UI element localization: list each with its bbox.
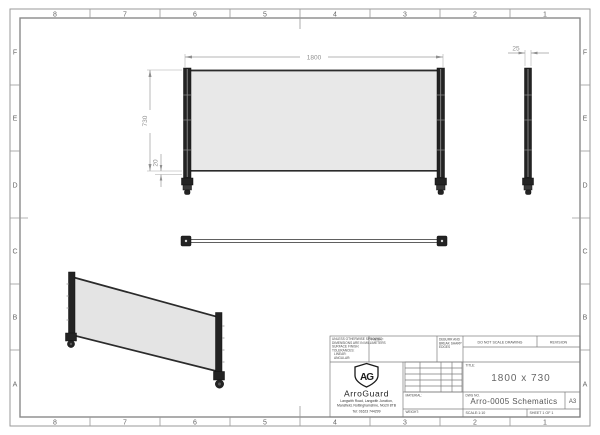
dwg-no-value: Arro-0005 Schematics xyxy=(470,397,557,406)
left-foot-caster xyxy=(182,178,194,195)
side-post xyxy=(525,68,532,178)
row-label: A xyxy=(13,382,18,389)
company-address-2: Mansfield, Nottinghamshire, NG20 8TB xyxy=(337,403,397,407)
paper-size: A3 xyxy=(569,399,577,405)
front-view xyxy=(182,68,447,195)
offset-dim-text: 20 xyxy=(153,159,160,167)
tolerance-note-line: ANGULAR: xyxy=(334,356,350,360)
col-label: 6 xyxy=(193,12,197,19)
row-label: E xyxy=(583,116,588,123)
row-label: F xyxy=(583,50,587,57)
col-label: 1 xyxy=(543,12,547,19)
row-label: C xyxy=(12,249,17,256)
company-cell: AG ArroGuard Langwith Road, Langwith Jun… xyxy=(337,364,397,414)
col-label: 5 xyxy=(263,12,267,19)
right-foot-caster xyxy=(435,178,447,195)
col-label: 3 xyxy=(403,420,407,427)
dimension-bottom-offset: 20 xyxy=(153,154,183,187)
title-block: UNLESS OTHERWISE SPECIFIED: DIMENSIONS A… xyxy=(330,336,580,417)
isometric-view xyxy=(66,272,225,388)
col-label: 4 xyxy=(333,12,337,19)
weight-label: WEIGHT: xyxy=(406,410,419,414)
row-label: D xyxy=(582,183,587,190)
height-dim-text: 730 xyxy=(142,115,149,126)
post-width-dim-text: 25 xyxy=(512,46,520,53)
revision-label: REVISION xyxy=(550,340,568,344)
logo-monogram: AG xyxy=(360,372,374,383)
drawing-sheet: 8 7 6 5 4 3 2 1 8 7 6 5 4 3 2 1 F E D C … xyxy=(0,0,600,435)
dimension-width: 1800 xyxy=(185,54,443,67)
col-label: 7 xyxy=(123,420,127,427)
scale-label: SCALE:1:10 xyxy=(466,411,486,415)
dimension-height: 730 xyxy=(142,70,182,171)
col-label: 8 xyxy=(53,12,57,19)
panel-iso xyxy=(74,278,218,372)
do-not-scale-label: DO NOT SCALE DRAWING xyxy=(478,340,523,344)
col-label: 5 xyxy=(263,420,267,427)
company-logo-shield-icon: AG xyxy=(355,364,378,388)
dwg-no-cell: DWG NO. Arro-0005 Schematics xyxy=(466,394,558,407)
col-label: 4 xyxy=(333,420,337,427)
row-label: A xyxy=(583,382,588,389)
right-post-hole xyxy=(441,240,443,242)
col-label: 8 xyxy=(53,420,57,427)
col-label: 2 xyxy=(473,420,477,427)
company-phone: Tel: 01623 744299 xyxy=(353,410,381,414)
row-label: F xyxy=(13,50,17,57)
title-cell: TITLE: 1800 x 730 xyxy=(466,364,551,385)
row-label: E xyxy=(13,116,18,123)
schematic-canvas: 8 7 6 5 4 3 2 1 8 7 6 5 4 3 2 1 F E D C … xyxy=(0,0,600,435)
row-label: C xyxy=(582,249,587,256)
col-label: 3 xyxy=(403,12,407,19)
panel-front xyxy=(186,70,442,171)
iso-right-post xyxy=(216,313,225,376)
iso-left-post xyxy=(67,272,76,335)
iso-right-foot-caster xyxy=(214,372,225,389)
left-post xyxy=(184,68,192,178)
drawing-title: 1800 x 730 xyxy=(491,373,551,384)
material-label: MATERIAL: xyxy=(406,394,423,398)
approval-table xyxy=(405,362,462,392)
col-label: 2 xyxy=(473,12,477,19)
deburr-cell: DEBURR AND BREAK SHARP EDGES xyxy=(439,338,462,350)
row-label: D xyxy=(12,183,17,190)
col-label: 6 xyxy=(193,420,197,427)
title-label: TITLE: xyxy=(466,364,476,368)
sheet-label: SHEET 1 OF 1 xyxy=(530,411,554,415)
left-post-hole xyxy=(185,240,187,242)
iso-left-foot-caster xyxy=(66,333,77,348)
side-view: 25 xyxy=(508,46,549,195)
side-foot-caster xyxy=(523,178,534,195)
company-name: ArroGuard xyxy=(344,389,389,399)
col-label: 7 xyxy=(123,12,127,19)
width-dim-text: 1800 xyxy=(307,54,322,61)
deburr-line: EDGES xyxy=(439,345,450,349)
row-label: B xyxy=(583,315,588,322)
dimension-post-width: 25 xyxy=(508,46,549,67)
right-post xyxy=(437,68,445,178)
row-label: B xyxy=(13,315,18,322)
col-label: 1 xyxy=(543,420,547,427)
finish-label: FINISH: xyxy=(371,338,382,342)
top-view xyxy=(181,236,447,246)
